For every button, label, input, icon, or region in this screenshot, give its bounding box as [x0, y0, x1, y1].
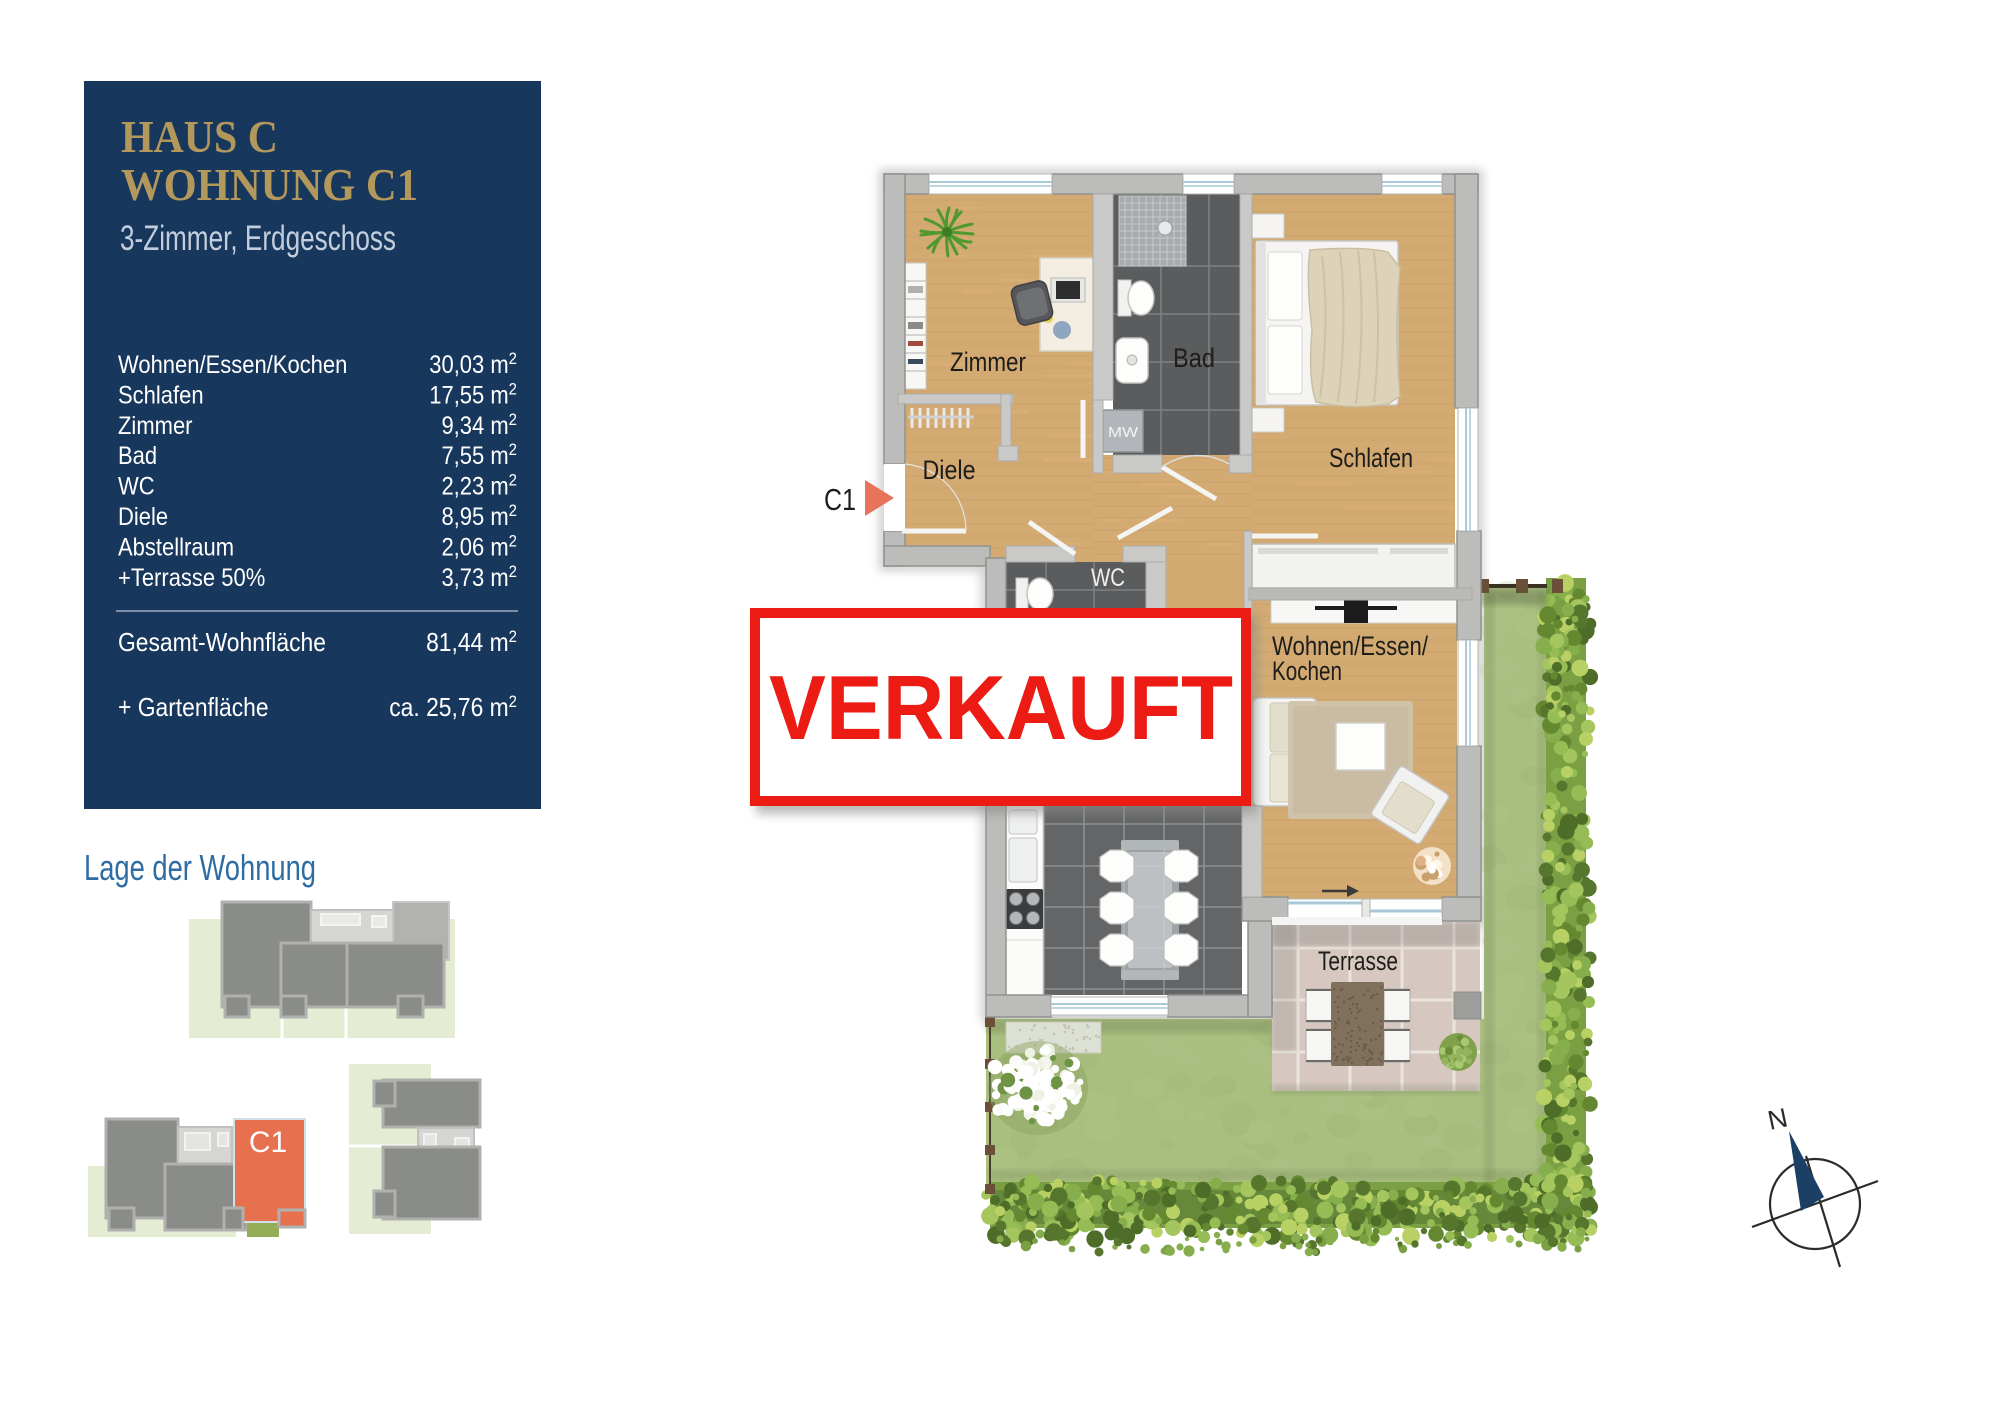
svg-text:C1: C1 — [824, 482, 856, 517]
svg-text:Kochen: Kochen — [1272, 656, 1342, 686]
svg-text:Diele: Diele — [118, 503, 168, 531]
svg-text:Bad: Bad — [118, 442, 157, 470]
svg-text:Gesamt-Wohnfläche: Gesamt-Wohnfläche — [118, 629, 326, 658]
svg-text:Wohnen/Essen/Kochen: Wohnen/Essen/Kochen — [118, 351, 347, 379]
svg-text:8,95 m2: 8,95 m2 — [441, 502, 517, 530]
svg-text:30,03 m2: 30,03 m2 — [429, 350, 517, 378]
svg-text:+Terrasse 50%: +Terrasse 50% — [118, 564, 265, 592]
svg-text:2,06 m2: 2,06 m2 — [441, 533, 517, 561]
svg-text:WC: WC — [118, 472, 155, 500]
svg-text:3,73 m2: 3,73 m2 — [441, 563, 517, 591]
svg-text:Zimmer: Zimmer — [950, 347, 1026, 377]
svg-text:HAUS C: HAUS C — [121, 111, 278, 162]
svg-text:WOHNUNG C1: WOHNUNG C1 — [121, 159, 418, 210]
svg-text:3-Zimmer, Erdgeschoss: 3-Zimmer, Erdgeschoss — [120, 219, 396, 258]
svg-text:C1: C1 — [249, 1126, 287, 1159]
svg-text:ca. 25,76 m2: ca. 25,76 m2 — [389, 693, 517, 722]
svg-text:Diele: Diele — [923, 455, 976, 485]
svg-text:Bad: Bad — [1173, 343, 1215, 373]
svg-text:Lage der Wohnung: Lage der Wohnung — [84, 847, 316, 888]
svg-text:N: N — [1765, 1102, 1790, 1135]
svg-text:VERKAUFT: VERKAUFT — [769, 658, 1233, 759]
svg-text:WC: WC — [1091, 564, 1125, 592]
svg-text:MW: MW — [1108, 424, 1139, 441]
svg-text:Schlafen: Schlafen — [1329, 443, 1413, 473]
svg-text:81,44 m2: 81,44 m2 — [426, 628, 517, 657]
svg-text:Abstellraum: Abstellraum — [118, 533, 234, 561]
svg-text:Terrasse: Terrasse — [1318, 946, 1398, 976]
svg-text:Zimmer: Zimmer — [118, 412, 193, 440]
svg-text:2,23 m2: 2,23 m2 — [441, 472, 517, 500]
svg-text:9,34 m2: 9,34 m2 — [441, 411, 517, 439]
svg-text:Schlafen: Schlafen — [118, 381, 204, 409]
svg-text:+ Gartenfläche: + Gartenfläche — [118, 694, 269, 723]
svg-text:7,55 m2: 7,55 m2 — [441, 441, 517, 469]
svg-text:17,55 m2: 17,55 m2 — [429, 381, 517, 409]
